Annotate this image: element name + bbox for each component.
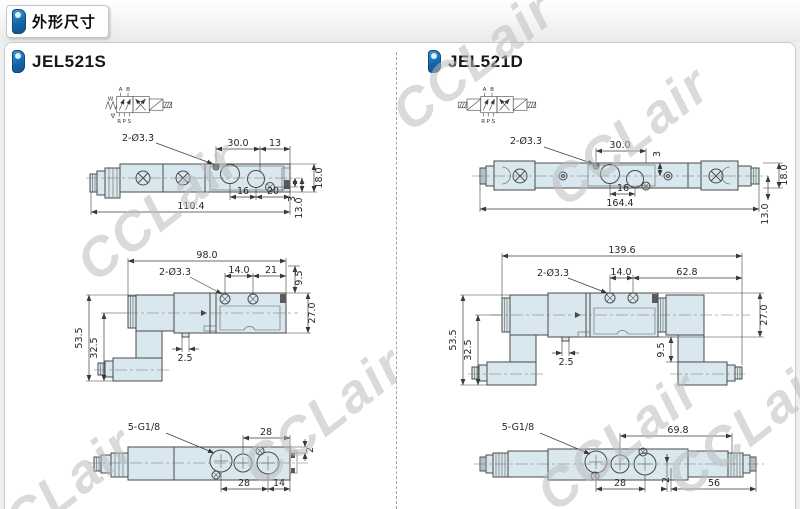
drawing-jel521s-top-view: 30.0 13 2-Ø3.3 16 20 110.4 3 13.0 18.0 xyxy=(86,128,336,242)
dim-total-length: 110.4 xyxy=(177,201,204,212)
bookmark-icon xyxy=(428,50,441,73)
dim-mount-holes: 2-Ø3.3 xyxy=(510,136,542,147)
port-label-b: B xyxy=(490,87,494,93)
dim-total-height: 53.5 xyxy=(448,329,459,350)
port-label-b: B xyxy=(126,87,130,93)
valve-symbol-body xyxy=(458,93,536,117)
model-title-jel521s: JEL521S xyxy=(32,52,106,72)
port-label-p: P xyxy=(123,119,127,124)
dim-bottom-14: 14 xyxy=(273,478,285,489)
valve-symbol-jel521s: A B W R P S xyxy=(88,84,188,124)
dim-hole-pitch: 14.0 xyxy=(610,267,631,278)
dim-total-length: 164.4 xyxy=(606,198,633,209)
dim-end-offset: 13 xyxy=(269,138,281,149)
section-title-jel521d: JEL521D xyxy=(428,50,523,73)
port-label-r: R xyxy=(481,119,485,124)
page-title-tab: 外形尺寸 xyxy=(6,5,109,38)
valve-body xyxy=(468,293,750,385)
valve-body xyxy=(94,293,298,381)
dim-offset-13: 13.0 xyxy=(294,197,305,218)
drawing-jel521d-side-view: 139.6 2-Ø3.3 14.0 62.8 53.5 32.5 2.5 9.5… xyxy=(440,244,792,404)
dim-body-width: 18.0 xyxy=(314,167,325,188)
dim-port-thread: 5-G1/8 xyxy=(128,422,160,433)
dim-hole-pitch: 30.0 xyxy=(227,138,248,149)
dim-hole-pitch: 14.0 xyxy=(228,265,249,276)
dim-bottom-28: 28 xyxy=(238,478,250,489)
dim-center-height: 32.5 xyxy=(463,339,474,360)
valve-symbol-jel521d: A B R P S xyxy=(452,84,552,124)
dim-body-height: 27.0 xyxy=(759,304,770,325)
dim-tab: 2.5 xyxy=(177,353,192,364)
section-title-jel521s: JEL521S xyxy=(12,50,106,73)
dim-top-28: 28 xyxy=(260,427,272,438)
port-label-s: S xyxy=(127,119,131,124)
port-label-p: P xyxy=(487,119,491,124)
dim-mount-holes: 2-Ø3.3 xyxy=(537,268,569,279)
dim-port-end: 20 xyxy=(267,186,279,197)
dim-port-pitch: 16 xyxy=(237,186,249,197)
dim-offset-3: 3 xyxy=(652,151,663,157)
drawing-jel521s-side-view: 98.0 2-Ø3.3 14.0 21 9.5 27.0 53.5 32.5 2… xyxy=(68,244,368,406)
valve-body xyxy=(88,447,308,480)
valve-body xyxy=(474,448,764,480)
port-label-a: A xyxy=(119,87,123,93)
bookmark-dot-icon xyxy=(15,12,21,18)
model-title-jel521d: JEL521D xyxy=(448,52,523,72)
dim-body-height: 27.0 xyxy=(307,302,318,323)
dim-port-pitch: 16 xyxy=(617,183,629,194)
dim-offset-2: 2 xyxy=(661,477,672,483)
drawing-jel521s-bottom-view: 5-G1/8 28 2 28 14 xyxy=(82,408,332,505)
dim-mount-holes: 2-Ø3.3 xyxy=(122,133,154,144)
dim-mount-holes: 2-Ø3.3 xyxy=(159,267,191,278)
bookmark-dot-icon xyxy=(15,53,21,59)
column-divider xyxy=(396,52,397,509)
dim-total-length: 98.0 xyxy=(196,250,217,261)
dim-total-length: 139.6 xyxy=(608,245,635,256)
valve-symbol-body xyxy=(106,93,172,118)
dim-center-height: 32.5 xyxy=(89,337,100,358)
page-title: 外形尺寸 xyxy=(32,11,96,32)
dim-bottom-56: 56 xyxy=(708,478,720,489)
port-label-s: S xyxy=(491,119,495,124)
dim-offset-2: 2 xyxy=(305,447,316,453)
port-label-a: A xyxy=(483,87,487,93)
port-label-r: R xyxy=(117,119,121,124)
dim-offset-95: 9.5 xyxy=(656,342,667,357)
dim-top-698: 69.8 xyxy=(667,425,688,436)
dim-port-thread: 5-G1/8 xyxy=(502,422,534,433)
dim-offset-13: 13.0 xyxy=(760,203,771,224)
dim-top-offset: 9.5 xyxy=(294,270,305,285)
dim-hole-end: 62.8 xyxy=(676,267,697,278)
bookmark-icon xyxy=(12,9,26,34)
dim-bottom-28: 28 xyxy=(614,478,626,489)
drawing-jel521d-top-view: 2-Ø3.3 30.0 3 16 164.4 18.0 13.0 xyxy=(468,128,798,242)
catalog-page: 外形尺寸 JEL521S A B W R P S xyxy=(0,0,800,509)
dim-tab: 2.5 xyxy=(558,357,573,368)
dim-total-height: 53.5 xyxy=(74,327,85,348)
dim-body-width: 18.0 xyxy=(779,164,790,185)
bookmark-dot-icon xyxy=(431,53,437,59)
dim-hole-end: 21 xyxy=(265,265,277,276)
bookmark-icon xyxy=(12,50,25,73)
dim-hole-pitch: 30.0 xyxy=(609,140,630,151)
drawing-jel521d-bottom-view: 5-G1/8 69.8 28 2 56 xyxy=(468,408,790,505)
top-header-bar: 外形尺寸 xyxy=(0,0,800,42)
port-label-w: W xyxy=(108,96,114,102)
